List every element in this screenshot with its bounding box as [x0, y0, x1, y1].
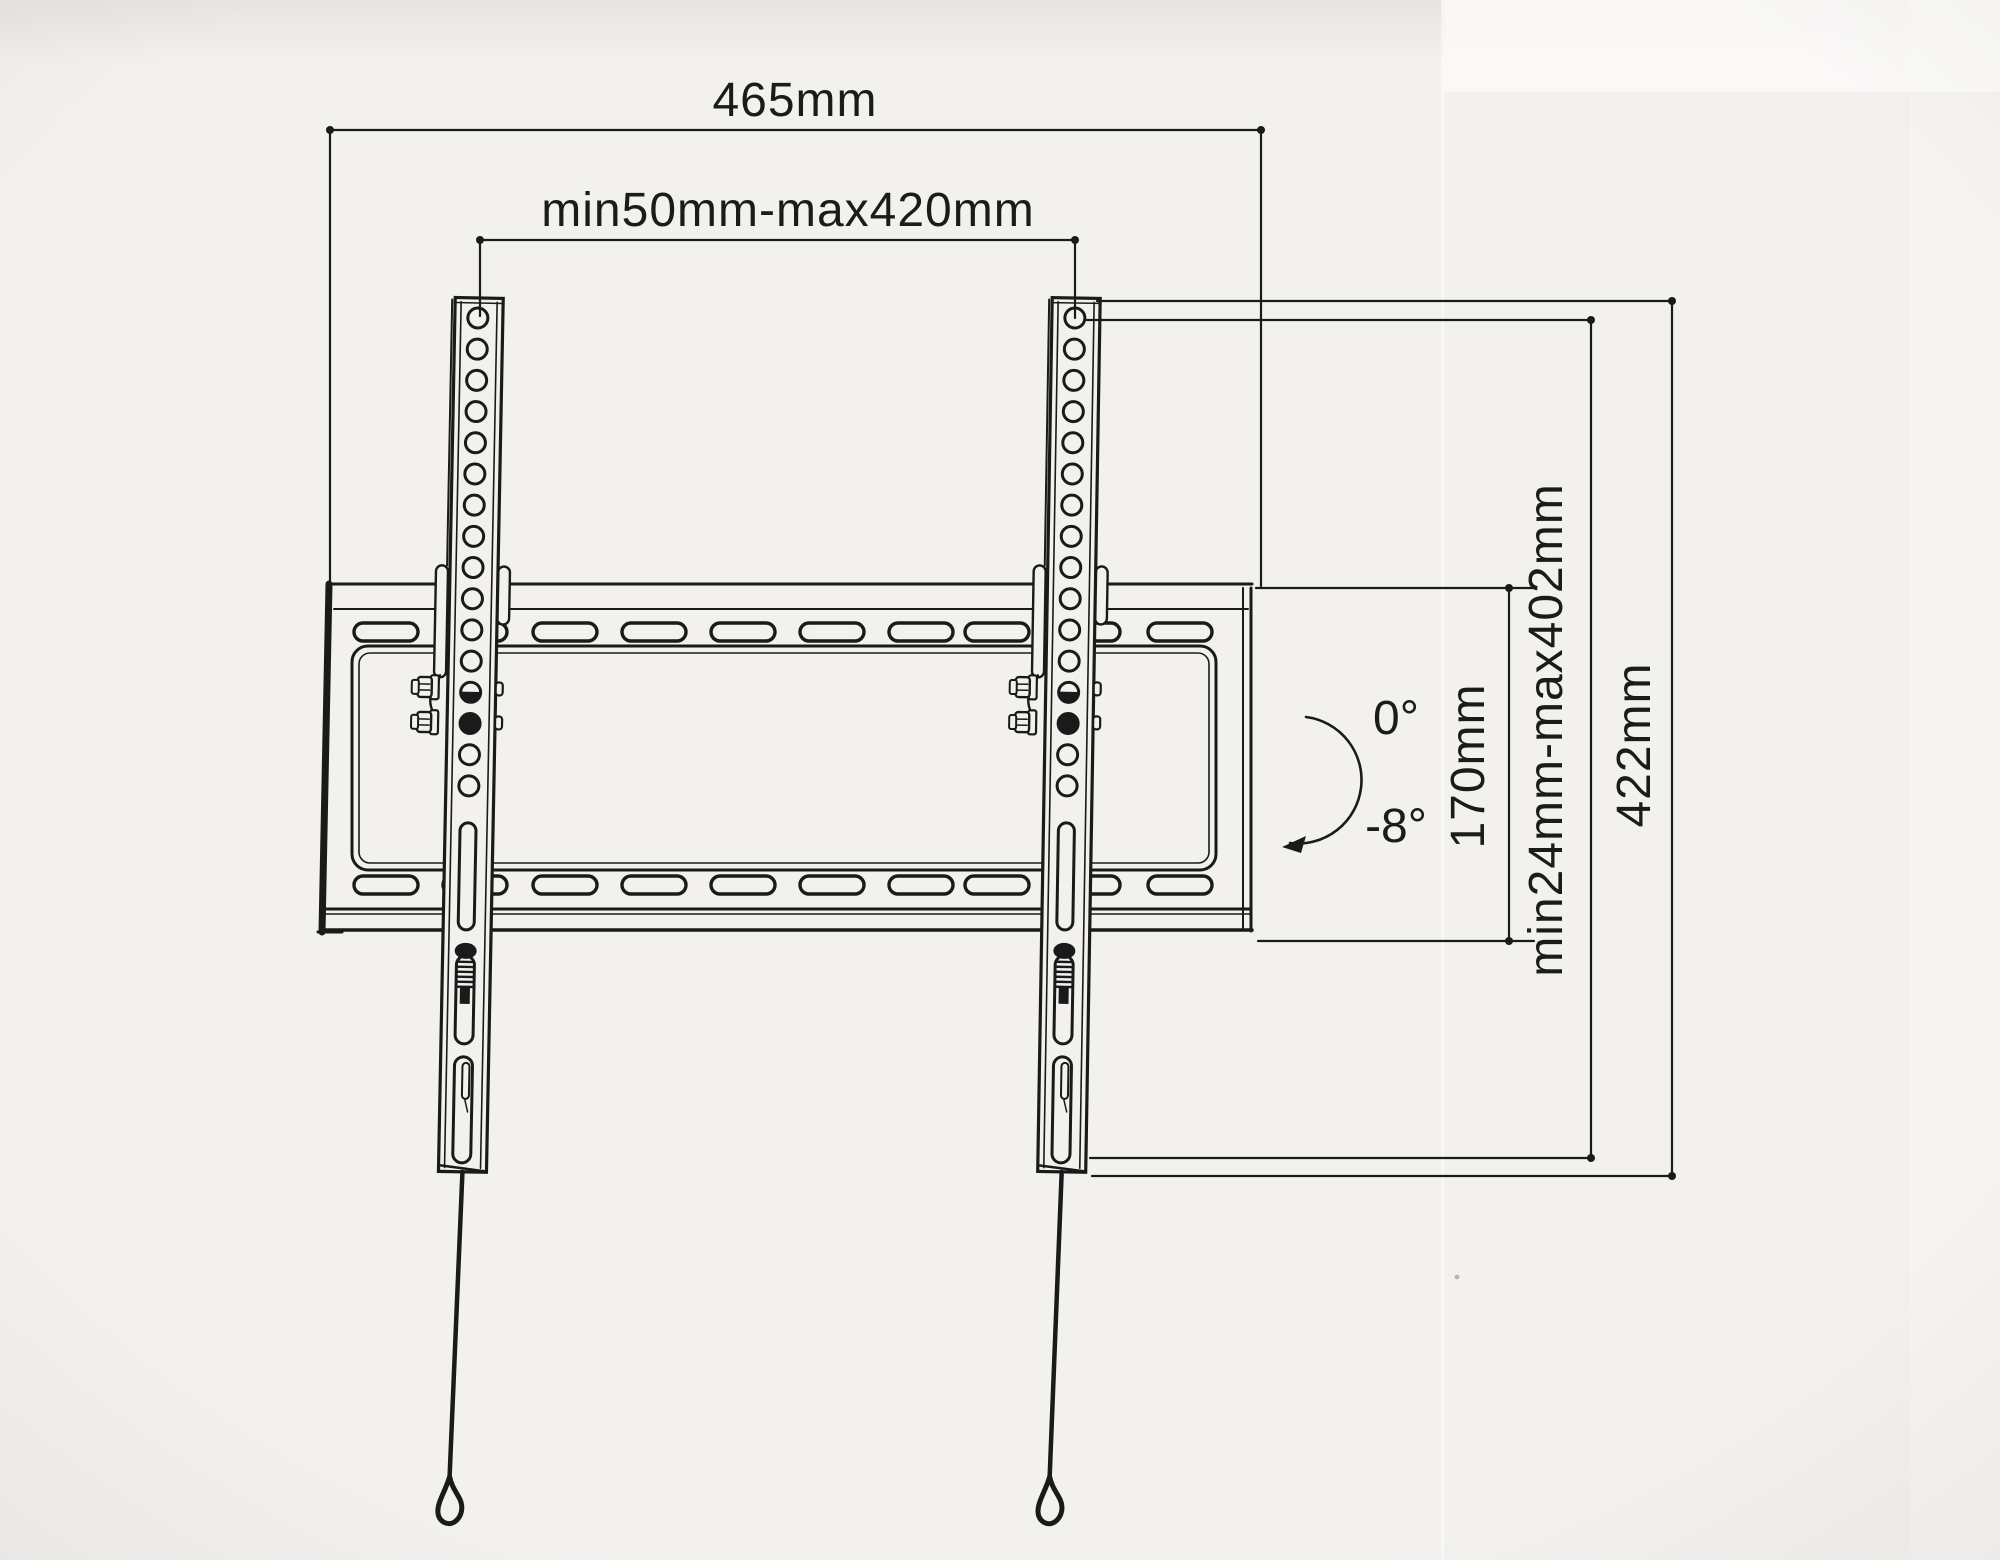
bolt-nut-upper: [496, 682, 503, 695]
label-plate-height: 170mm: [1442, 683, 1495, 848]
hook-tab-left: [1032, 565, 1046, 677]
photographed-manual-page: 465mm min50mm-max420mm 170mm min24mm-max…: [0, 0, 2000, 1560]
bolt-nut-upper: [1094, 682, 1101, 695]
hook-tab-left: [434, 565, 448, 677]
label-plate-width: 465mm: [712, 74, 877, 127]
release-pin: [462, 1063, 470, 1099]
release-pin: [1061, 1063, 1069, 1099]
paper-speck: [1455, 1275, 1460, 1280]
bolt-nut-lower: [495, 716, 502, 729]
label-vertical-range: min24mm-max402mm: [1520, 483, 1573, 976]
label-tilt-upper: 0°: [1373, 692, 1419, 745]
arm-slot-upper: [458, 823, 476, 930]
mount-diagram: 465mm min50mm-max420mm 170mm min24mm-max…: [0, 0, 2000, 1560]
bolt-nut-lower: [1093, 716, 1100, 729]
label-tilt-lower: -8°: [1365, 800, 1427, 853]
arm-slot-upper: [1057, 823, 1075, 930]
label-arm-height: 422mm: [1608, 662, 1661, 827]
label-horizontal-range: min50mm-max420mm: [541, 184, 1034, 237]
